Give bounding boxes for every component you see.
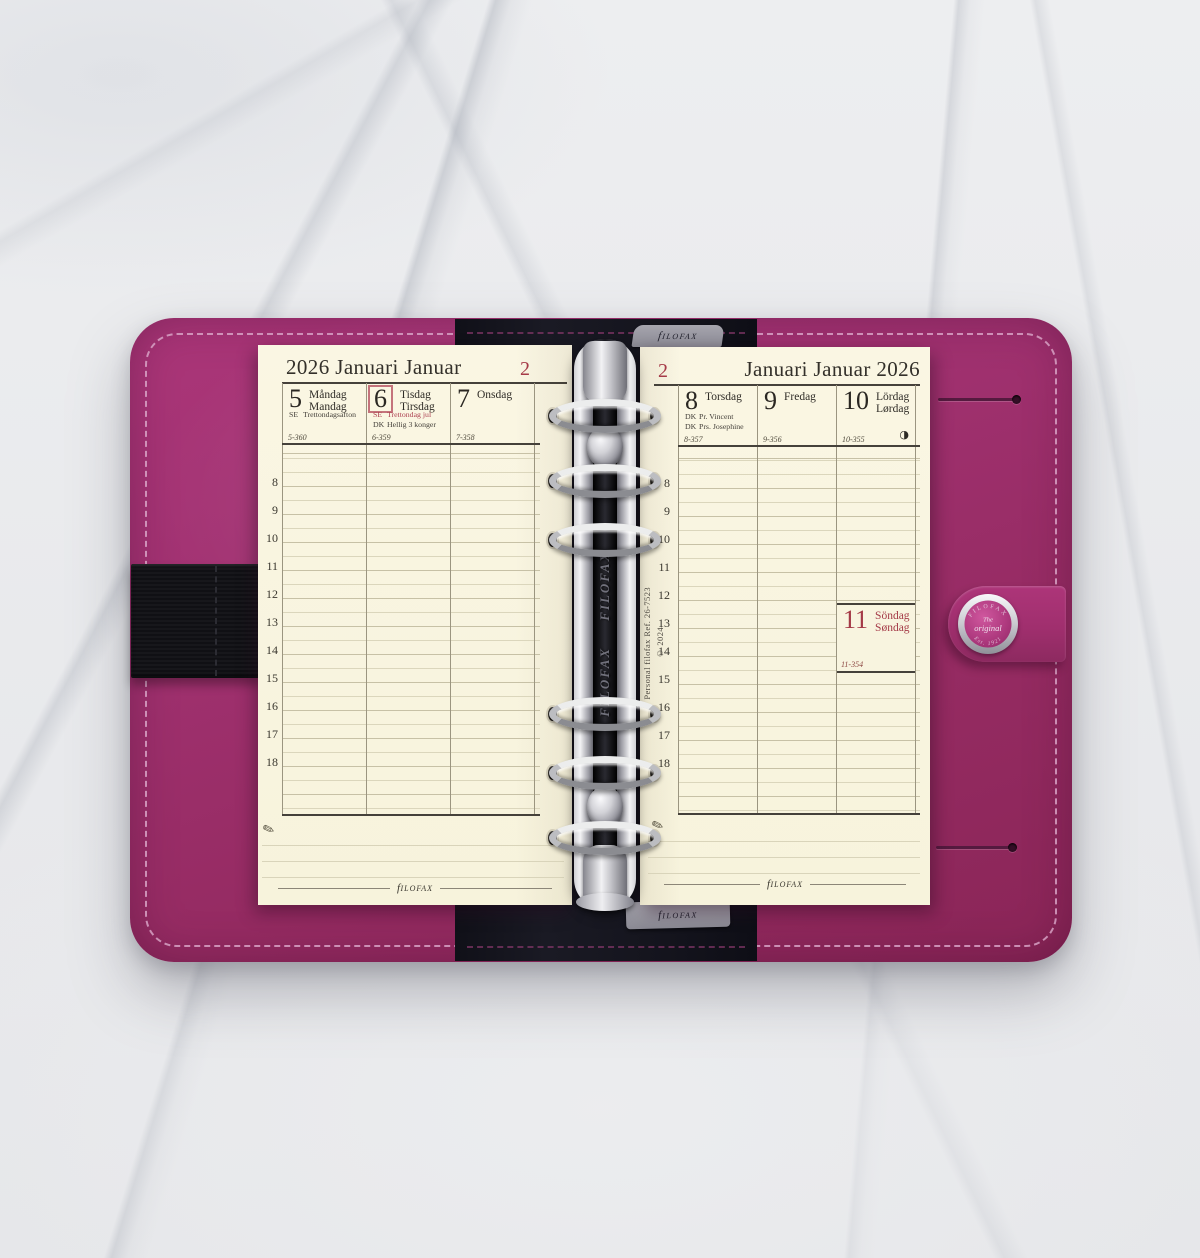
day-number: 11	[843, 608, 868, 632]
day-cell-saturday: 10 Lördag Lørdag 10-355 ◑	[836, 385, 915, 447]
note-line	[262, 877, 564, 878]
mechanism-post-top	[583, 341, 627, 403]
sunday-section: 11 Söndag Søndag 11-354	[836, 603, 915, 673]
note-line	[262, 845, 564, 846]
note-line	[648, 857, 920, 858]
hour-label: 18	[258, 755, 278, 770]
day-number-today: 6	[368, 385, 393, 413]
week-number: 2	[520, 358, 530, 381]
day-of-year: 8-357	[684, 435, 703, 444]
hour-label: 15	[258, 671, 278, 686]
day-header-band: 5 Måndag Mandag SETrettondagsafton 5-360…	[282, 383, 540, 445]
pocket-slit-hole	[1008, 843, 1017, 852]
day-of-year: 7-358	[456, 433, 475, 442]
page-footer-logo: filofax	[278, 882, 552, 894]
spine-brand-text: FILOFAX FILOFAX	[597, 551, 613, 717]
day-number: 7	[457, 387, 470, 411]
binder-ring	[549, 697, 661, 731]
day-names: Fredag	[784, 389, 816, 403]
day-of-year: 5-360	[288, 433, 307, 442]
hour-label: 10	[258, 531, 278, 546]
binder-ring	[549, 464, 661, 498]
page-title: 2026 Januari Januar	[286, 355, 462, 380]
holiday-list: SETrettondagsafton	[289, 410, 356, 420]
day-cell-thursday: 8 Torsdag DKPr. Vincent DKPrs. Josephine…	[678, 385, 757, 447]
day-of-year: 11-354	[841, 660, 863, 669]
binder-ring	[549, 821, 661, 855]
hour-label: 11	[258, 559, 278, 574]
day-names: Söndag Søndag	[875, 608, 910, 634]
binder-ring	[549, 756, 661, 790]
flyleaf-stitching	[467, 946, 745, 948]
note-line	[262, 861, 564, 862]
hour-label: 13	[258, 615, 278, 630]
holiday-list: SETrettondag jul DKHellig 3 konger	[373, 410, 436, 429]
pen-icon: ✎	[261, 820, 277, 839]
day-number: 9	[764, 389, 777, 413]
hour-label: 12	[258, 587, 278, 602]
column-line	[836, 603, 837, 673]
day-of-year: 9-356	[763, 435, 782, 444]
page-footer-logo: filofax	[664, 878, 906, 890]
day-number: 10	[843, 389, 869, 413]
day-cell-tuesday: 6 Tisdag Tirsdag SETrettondag jul DKHell…	[366, 383, 450, 445]
diary-page-right: 2 Januari Januar 2026 8 Torsdag DKPr. Vi…	[640, 347, 930, 905]
day-of-year: 10-355	[842, 435, 865, 444]
hour-label: 17	[650, 728, 670, 743]
day-cell-wednesday: 7 Onsdag 7-358	[450, 383, 534, 445]
page-reference-text: Personal filofax Ref. 26-7523 © 2024	[642, 568, 665, 718]
diary-page-left: 2026 Januari Januar 2 5 Måndag Mandag SE…	[258, 345, 572, 905]
copyright-line: © 2024	[655, 627, 665, 659]
pocket-slit	[938, 398, 1016, 401]
day-number: 5	[289, 387, 302, 411]
pen-loop-elastic	[131, 564, 263, 678]
top-divider-tab: filofax	[631, 325, 724, 347]
week-grid: 8 Torsdag DKPr. Vincent DKPrs. Josephine…	[678, 385, 920, 815]
mechanism-foot	[576, 893, 634, 911]
day-names: Torsdag	[705, 389, 742, 403]
day-names: Onsdag	[477, 387, 512, 401]
day-cell-monday: 5 Måndag Mandag SETrettondagsafton 5-360	[282, 383, 366, 445]
day-names: Lördag Lørdag	[876, 389, 909, 415]
week-grid: 5 Måndag Mandag SETrettondagsafton 5-360…	[282, 383, 540, 816]
filofax-logo: filofax	[767, 878, 803, 890]
hour-label: 9	[258, 503, 278, 518]
pocket-slit	[936, 846, 1012, 849]
binder-ring	[549, 399, 661, 433]
holiday-list: DKPr. Vincent DKPrs. Josephine	[685, 412, 744, 431]
week-number: 2	[658, 360, 668, 383]
page-title: Januari Januar 2026	[744, 357, 920, 382]
day-number: 8	[685, 389, 698, 413]
popper-button: FILOFAX The original Est. 1921	[957, 593, 1019, 655]
moon-phase-icon: ◑	[899, 428, 909, 441]
pocket-slit-hole	[1012, 395, 1021, 404]
day-header-band: 8 Torsdag DKPr. Vincent DKPrs. Josephine…	[678, 385, 920, 447]
hour-label: 8	[258, 475, 278, 490]
note-line	[648, 841, 920, 842]
day-cell-friday: 9 Fredag 9-356	[757, 385, 836, 447]
hour-label: 9	[650, 504, 670, 519]
day-of-year: 6-359	[372, 433, 391, 442]
binder-ring	[549, 523, 661, 557]
filofax-logo: filofax	[397, 882, 433, 894]
filofax-logo: filofax	[658, 908, 698, 921]
note-line	[648, 873, 920, 874]
ref-line: Personal filofax Ref. 26-7523	[642, 587, 652, 700]
hour-lines	[282, 445, 540, 814]
hour-label: 17	[258, 727, 278, 742]
popper-text-original: original	[974, 623, 1002, 633]
filofax-logo: filofax	[657, 330, 698, 342]
hour-label: 14	[258, 643, 278, 658]
product-photo-filofax-organizer: { "scene": { "brand_f": "f", "brand_rest…	[0, 0, 1200, 1258]
hour-label: 16	[258, 699, 278, 714]
